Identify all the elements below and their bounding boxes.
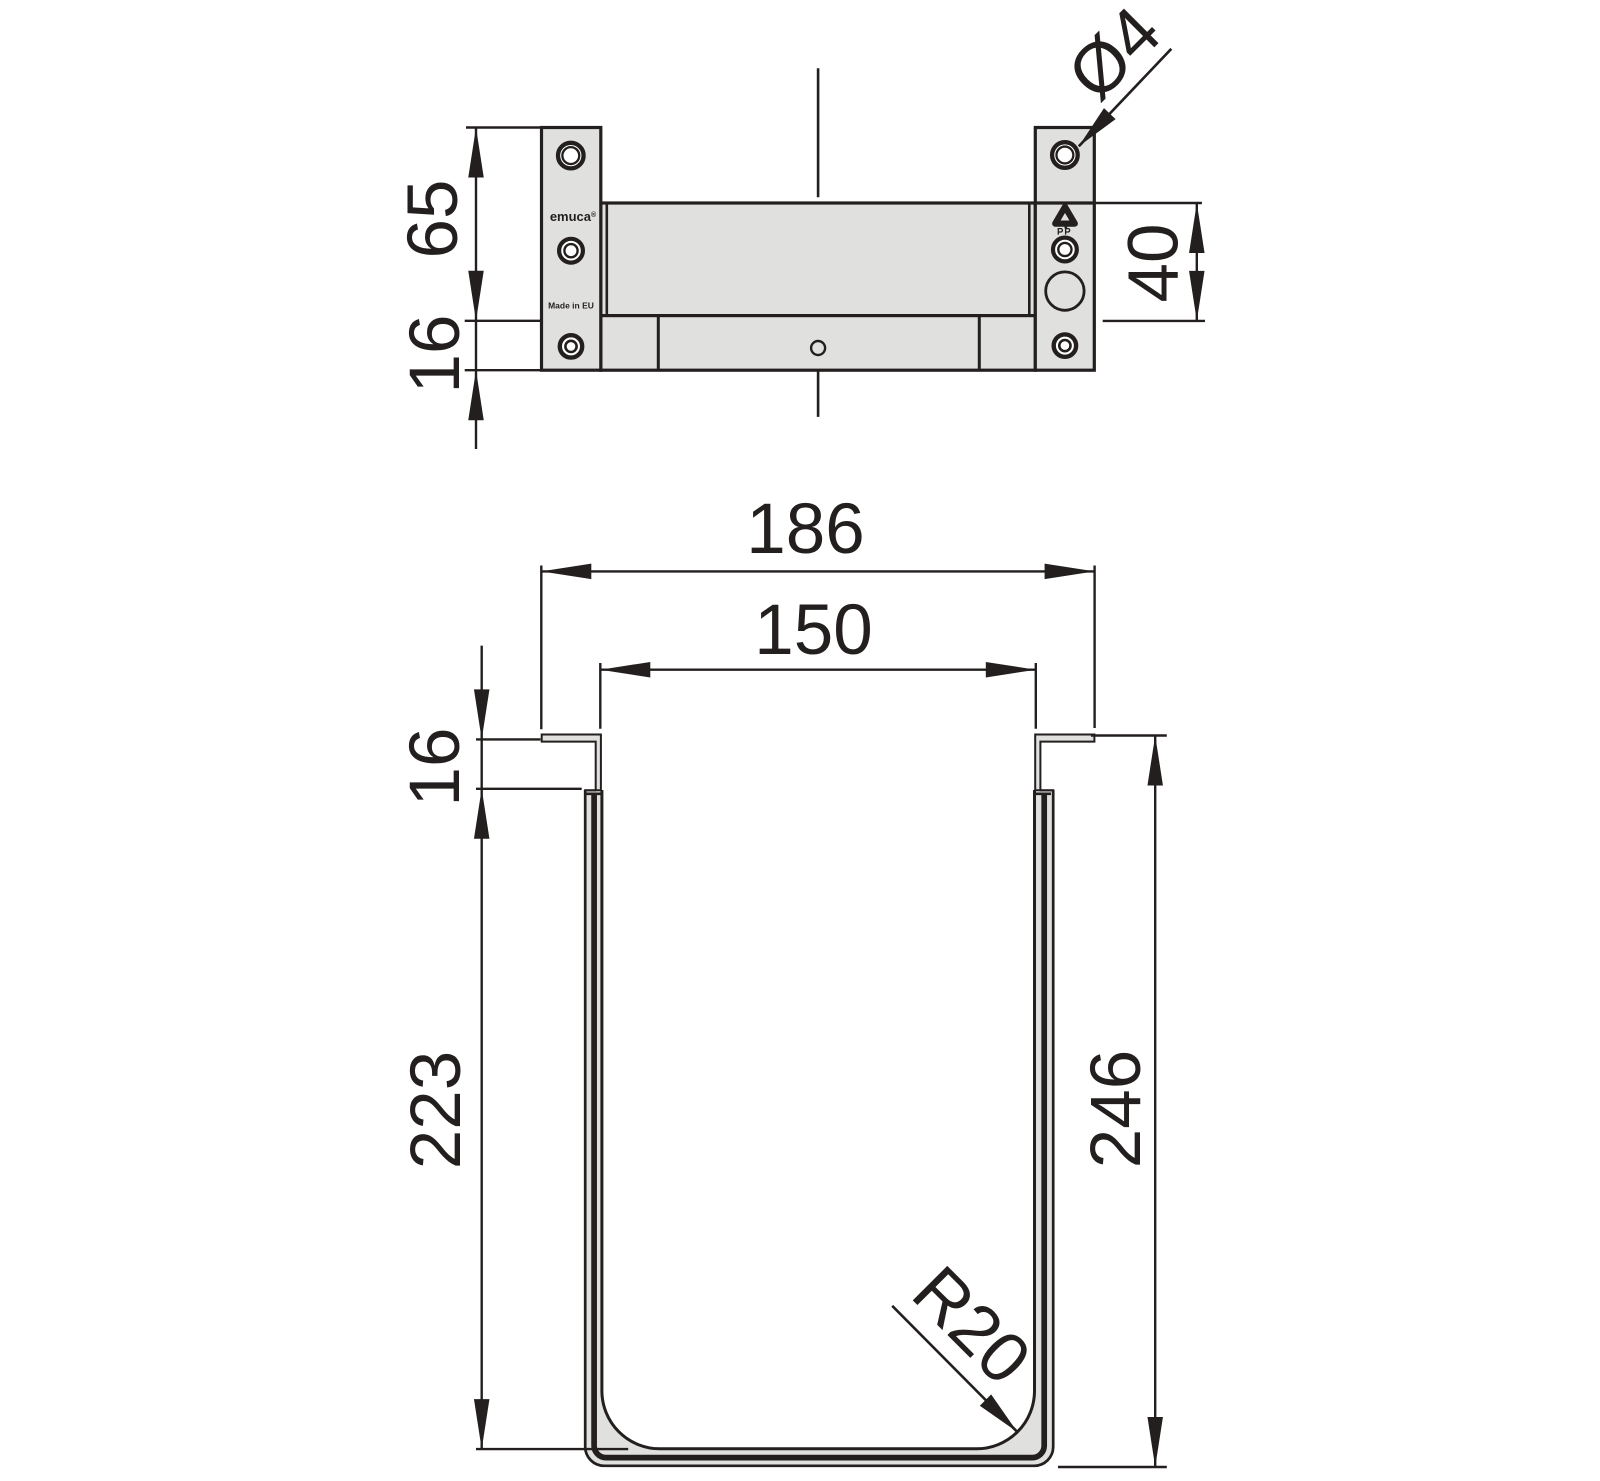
svg-text:246: 246: [1077, 1050, 1156, 1168]
svg-text:40: 40: [1114, 224, 1193, 303]
svg-text:150: 150: [754, 591, 872, 670]
svg-text:65: 65: [394, 180, 473, 259]
svg-text:16: 16: [396, 728, 475, 807]
svg-text:emuca®: emuca®: [550, 209, 597, 224]
svg-text:223: 223: [397, 1051, 476, 1169]
svg-text:186: 186: [746, 490, 864, 569]
svg-text:R20: R20: [897, 1252, 1045, 1400]
svg-text:Ø4: Ø4: [1053, 0, 1176, 115]
svg-text:16: 16: [396, 315, 475, 394]
svg-text:Made in EU: Made in EU: [548, 301, 594, 311]
